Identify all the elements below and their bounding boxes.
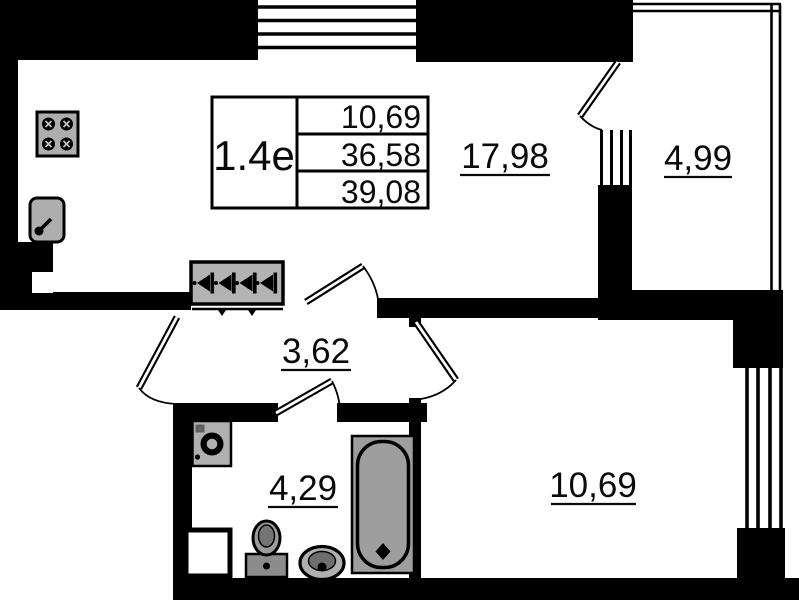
- top-wall-right: [416, 0, 633, 62]
- bathroom-area-label: 4,29: [269, 469, 337, 508]
- bathroom-door: [276, 381, 340, 413]
- vent-shaft-bathroom: [186, 530, 230, 576]
- balcony-area-label: 4,99: [664, 139, 732, 178]
- title-block-row1: 10,69: [341, 99, 421, 135]
- living-room-door: [306, 266, 378, 302]
- bathtub-icon: [352, 436, 414, 573]
- kitchen-sink-icon: [30, 198, 64, 242]
- floor-plan-page: 1.4e 10,69 36,58 39,08 17,98 4,99 3,62 4…: [0, 0, 799, 600]
- bottom-wall: [173, 578, 799, 600]
- living-bottom-wall: [377, 298, 633, 318]
- hallway-top-wall: [0, 292, 191, 310]
- washing-machine-icon: [193, 421, 232, 466]
- kitchen-window: [258, 7, 416, 48]
- title-block-row2: 36,58: [341, 137, 421, 173]
- floor-plan: 1.4e 10,69 36,58 39,08 17,98 4,99 3,62 4…: [0, 0, 799, 600]
- unit-label: 1.4e: [213, 132, 295, 179]
- bedroom-area-label: 10,69: [549, 466, 637, 505]
- bedroom-window: [747, 368, 781, 528]
- top-wall-left: [0, 0, 258, 60]
- hallway-area-label: 3,62: [282, 332, 350, 371]
- bathroom-top-wall-left: [173, 403, 278, 422]
- wardrobe-hangers-icon: [191, 262, 283, 316]
- bedroom-door: [416, 322, 456, 399]
- left-wall: [0, 0, 18, 310]
- bedroom-right-upper-block: [733, 320, 783, 368]
- kitchen-living-area-label: 17,98: [461, 137, 549, 176]
- toilet-icon: [246, 521, 287, 577]
- bathroom-sink-icon: [300, 547, 344, 580]
- balcony-bottom-wall: [598, 290, 783, 320]
- title-block-row3: 39,08: [341, 174, 421, 210]
- entrance-door: [139, 317, 177, 404]
- stove-icon: [37, 112, 78, 156]
- title-block: 1.4e 10,69 36,58 39,08: [212, 97, 428, 210]
- balcony-door: [580, 62, 618, 130]
- balcony-window: [602, 130, 631, 186]
- vent-shaft-left: [32, 272, 53, 293]
